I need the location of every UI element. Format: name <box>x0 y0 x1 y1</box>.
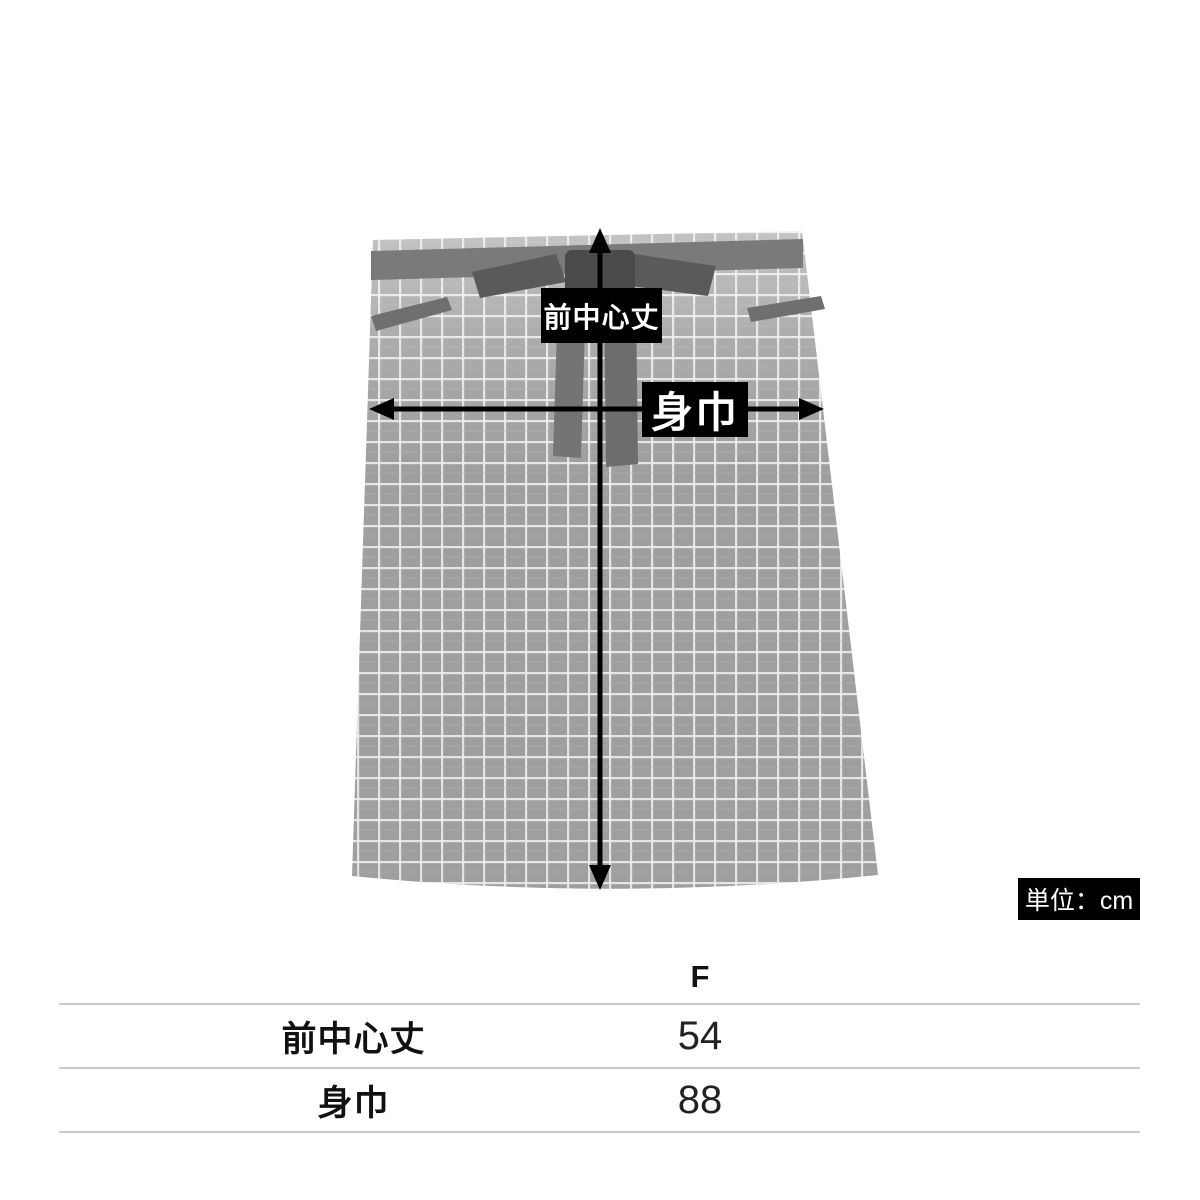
table-row-body-width: 身巾 88 <box>59 1069 1140 1133</box>
size-table-header-row: F <box>59 950 1140 1005</box>
size-spec-page: 前中心丈 身巾 単位：cm F 前中心丈 54 身巾 88 <box>0 0 1200 1200</box>
size-column-header: F <box>648 950 752 1003</box>
size-table: F 前中心丈 54 身巾 88 <box>59 950 1140 1133</box>
front-center-length-label: 前中心丈 <box>541 288 662 343</box>
table-row-front-center-length: 前中心丈 54 <box>59 1005 1140 1069</box>
body-width-label: 身巾 <box>642 382 748 437</box>
row-label: 前中心丈 <box>59 1005 648 1067</box>
header-spacer <box>59 950 648 1003</box>
row-label: 身巾 <box>59 1069 648 1131</box>
unit-badge: 単位：cm <box>1018 878 1140 920</box>
row-value: 54 <box>648 1005 752 1067</box>
row-value: 88 <box>648 1069 752 1131</box>
